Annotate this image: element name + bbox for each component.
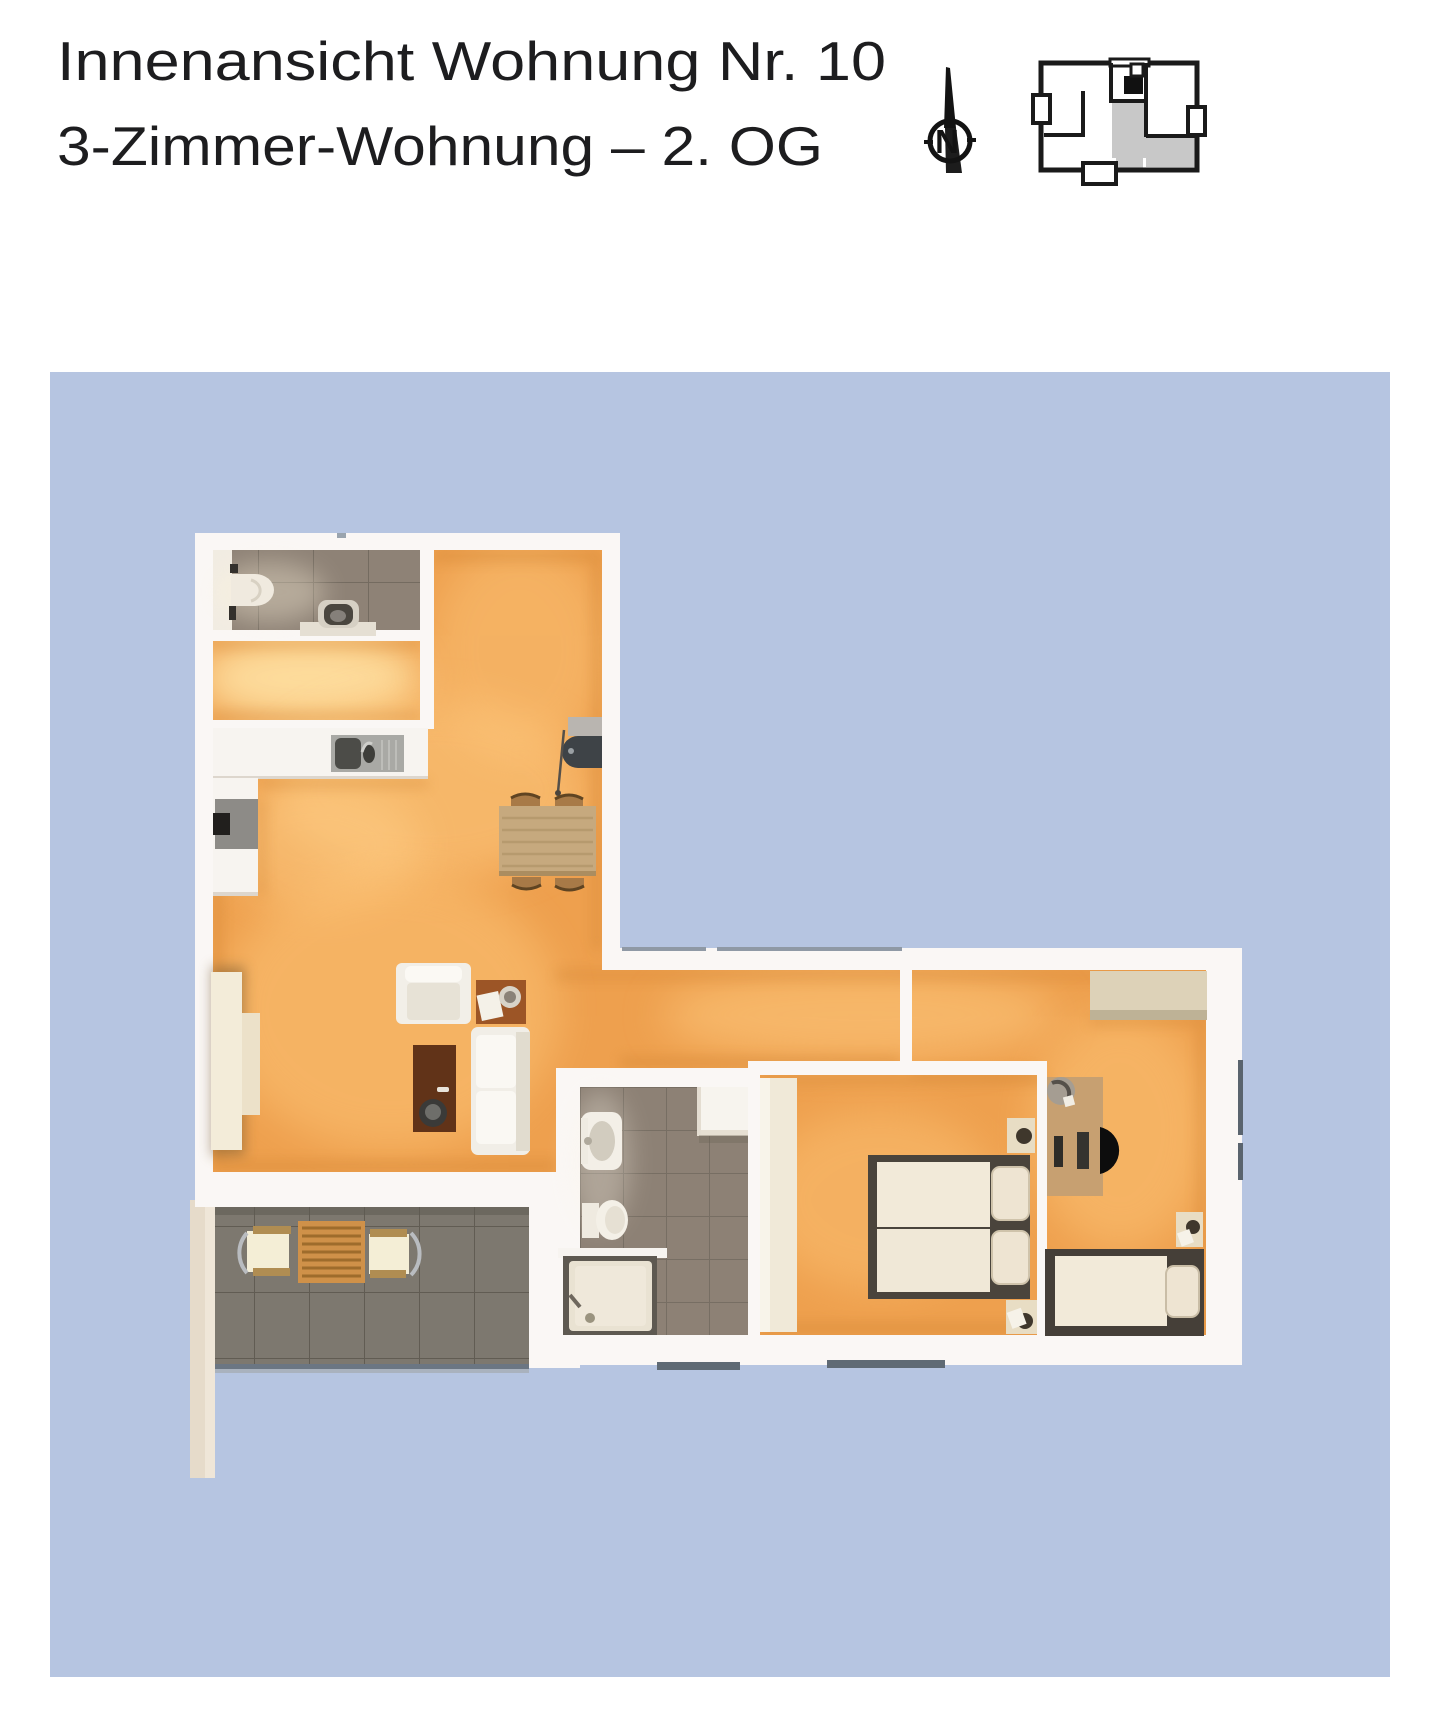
- svg-text:Innenansicht Wohnung Nr. 10: Innenansicht Wohnung Nr. 10: [57, 30, 886, 92]
- svg-text:3-Zimmer-Wohnung – 2. OG: 3-Zimmer-Wohnung – 2. OG: [57, 115, 823, 177]
